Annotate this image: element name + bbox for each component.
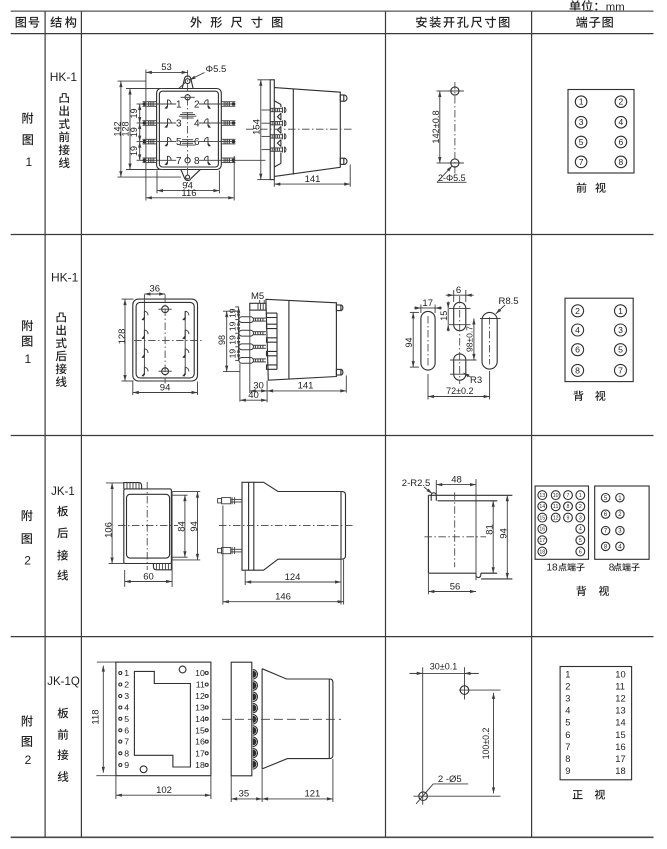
- svg-text:1: 1: [565, 670, 570, 680]
- svg-text:12: 12: [195, 691, 205, 701]
- svg-text:2: 2: [124, 680, 129, 690]
- svg-text:8: 8: [567, 504, 570, 510]
- svg-text:30±0.1: 30±0.1: [430, 662, 457, 672]
- svg-text:56: 56: [450, 581, 461, 592]
- svg-text:7: 7: [567, 493, 570, 499]
- svg-text:HK-1: HK-1: [50, 70, 78, 84]
- svg-text:118: 118: [91, 709, 102, 724]
- svg-text:13: 13: [615, 706, 625, 716]
- svg-text:18: 18: [195, 760, 205, 770]
- svg-text:53: 53: [161, 62, 172, 73]
- svg-text:154: 154: [252, 119, 263, 135]
- svg-text:4: 4: [618, 545, 622, 551]
- svg-text:3: 3: [176, 119, 182, 130]
- svg-text:2: 2: [565, 682, 570, 692]
- svg-text:2: 2: [24, 554, 31, 568]
- svg-text:7: 7: [124, 737, 129, 747]
- svg-text:3: 3: [618, 529, 622, 535]
- svg-text:6: 6: [575, 345, 580, 355]
- svg-text:94: 94: [189, 521, 200, 532]
- svg-text:94: 94: [160, 382, 171, 393]
- svg-text:2-Φ5.5: 2-Φ5.5: [438, 173, 466, 183]
- svg-text:11: 11: [615, 682, 625, 692]
- svg-text:1: 1: [618, 496, 622, 502]
- svg-text:2 -Ø5: 2 -Ø5: [438, 774, 462, 785]
- svg-text:2-R2.5: 2-R2.5: [402, 478, 431, 489]
- svg-text:19: 19: [228, 349, 238, 359]
- svg-text:1: 1: [618, 306, 623, 316]
- svg-text:19: 19: [129, 146, 139, 156]
- svg-text:4: 4: [575, 325, 580, 335]
- svg-text:19: 19: [129, 127, 139, 137]
- svg-text:1: 1: [26, 155, 33, 169]
- svg-text:15: 15: [615, 730, 625, 740]
- svg-text:146: 146: [275, 592, 291, 603]
- svg-text:40: 40: [248, 390, 259, 401]
- svg-text:3: 3: [579, 515, 582, 521]
- svg-text:7: 7: [176, 156, 182, 167]
- svg-text:R8.5: R8.5: [499, 296, 519, 307]
- svg-text:94: 94: [499, 528, 510, 539]
- svg-text:15: 15: [195, 725, 205, 735]
- svg-text:102: 102: [156, 785, 172, 796]
- svg-text:9: 9: [567, 515, 570, 521]
- svg-text:36: 36: [150, 284, 161, 295]
- svg-text:1: 1: [176, 100, 182, 111]
- svg-text:16: 16: [195, 737, 205, 747]
- svg-text:8: 8: [565, 754, 570, 764]
- svg-text:19: 19: [129, 108, 139, 118]
- svg-text:1: 1: [25, 352, 32, 366]
- svg-text:84: 84: [176, 521, 187, 532]
- svg-text:19: 19: [228, 308, 238, 318]
- svg-text:141: 141: [298, 381, 314, 392]
- svg-text:5: 5: [618, 345, 623, 355]
- svg-text:16: 16: [539, 527, 545, 533]
- svg-text:18: 18: [546, 563, 558, 574]
- svg-text:10: 10: [195, 668, 205, 678]
- svg-text:2: 2: [25, 753, 32, 767]
- svg-text:7: 7: [618, 365, 623, 375]
- svg-text:19: 19: [228, 335, 238, 345]
- svg-text:121: 121: [304, 789, 320, 800]
- svg-text:5: 5: [579, 137, 584, 147]
- svg-text:5: 5: [579, 538, 582, 544]
- svg-text:9: 9: [124, 760, 129, 770]
- svg-text:8: 8: [124, 748, 129, 758]
- svg-text:5: 5: [604, 496, 608, 502]
- svg-text:2: 2: [579, 504, 582, 510]
- svg-text:15: 15: [439, 311, 449, 321]
- svg-text:8: 8: [609, 563, 615, 574]
- svg-text:14: 14: [615, 718, 625, 728]
- svg-text:14: 14: [539, 504, 545, 510]
- svg-text:15: 15: [539, 515, 545, 521]
- svg-text:7: 7: [565, 742, 570, 752]
- svg-text:7: 7: [604, 529, 608, 535]
- svg-text:17: 17: [615, 754, 625, 764]
- svg-text:124: 124: [285, 572, 301, 583]
- svg-text:81: 81: [484, 524, 495, 535]
- svg-text:17: 17: [422, 298, 433, 309]
- svg-text:18: 18: [539, 549, 545, 555]
- svg-text:48: 48: [451, 475, 462, 486]
- svg-text:35: 35: [239, 789, 250, 800]
- svg-text:1: 1: [579, 97, 584, 107]
- svg-text:10: 10: [553, 493, 559, 499]
- svg-text:14: 14: [195, 714, 205, 724]
- svg-text:6: 6: [619, 137, 624, 147]
- svg-text:11: 11: [196, 680, 205, 690]
- svg-text:98±0.7: 98±0.7: [465, 326, 475, 352]
- svg-text:4: 4: [194, 119, 200, 130]
- svg-text:6: 6: [124, 725, 129, 735]
- svg-text:3: 3: [124, 691, 129, 701]
- svg-text:60: 60: [143, 571, 154, 582]
- svg-text:3: 3: [579, 117, 584, 127]
- svg-text:142±0.8: 142±0.8: [431, 110, 441, 143]
- svg-text:JK-1: JK-1: [51, 486, 75, 498]
- svg-text:6: 6: [565, 730, 570, 740]
- svg-text:6: 6: [194, 137, 200, 148]
- svg-text:6: 6: [604, 512, 608, 518]
- svg-text:8: 8: [194, 156, 200, 167]
- svg-text:12: 12: [553, 515, 559, 521]
- svg-text:9: 9: [565, 766, 570, 776]
- svg-text:2: 2: [619, 97, 624, 107]
- svg-text:6: 6: [579, 549, 582, 555]
- svg-text:116: 116: [181, 188, 196, 199]
- svg-text:8: 8: [604, 545, 608, 551]
- svg-text:13: 13: [539, 493, 545, 499]
- svg-text:141: 141: [305, 174, 321, 185]
- svg-text:10: 10: [615, 670, 625, 680]
- svg-text:18: 18: [615, 766, 625, 776]
- svg-text:4: 4: [565, 706, 570, 716]
- svg-text:JK-1Q: JK-1Q: [47, 676, 80, 688]
- svg-text:98: 98: [217, 335, 227, 345]
- svg-text:2: 2: [575, 306, 580, 316]
- svg-text:R3: R3: [470, 375, 482, 386]
- svg-text:HK-1: HK-1: [51, 270, 79, 284]
- svg-text:Φ5.5: Φ5.5: [206, 64, 227, 75]
- svg-text:3: 3: [618, 325, 623, 335]
- svg-text:7: 7: [579, 157, 584, 167]
- svg-text:72±0.2: 72±0.2: [446, 386, 473, 396]
- svg-text:5: 5: [176, 137, 182, 148]
- svg-text:1: 1: [579, 493, 582, 499]
- svg-text:100±0.2: 100±0.2: [481, 728, 491, 760]
- svg-text:19: 19: [228, 321, 238, 331]
- svg-text:4: 4: [124, 703, 129, 713]
- svg-text:8: 8: [619, 157, 624, 167]
- svg-text:12: 12: [615, 694, 625, 704]
- svg-text:17: 17: [195, 748, 205, 758]
- svg-text:2: 2: [618, 512, 622, 518]
- svg-text:5: 5: [565, 718, 570, 728]
- svg-text:94: 94: [404, 337, 414, 347]
- svg-text:106: 106: [103, 522, 114, 538]
- svg-text:13: 13: [195, 703, 205, 713]
- svg-text:8: 8: [575, 365, 580, 375]
- svg-text:128: 128: [117, 329, 128, 345]
- svg-text:2: 2: [194, 100, 200, 111]
- svg-text:17: 17: [539, 538, 545, 544]
- svg-text:6: 6: [456, 285, 461, 296]
- svg-text:11: 11: [553, 504, 558, 510]
- svg-text:4: 4: [619, 117, 624, 127]
- svg-text:1: 1: [124, 668, 129, 678]
- svg-text:16: 16: [615, 742, 625, 752]
- svg-text:M5: M5: [251, 291, 264, 302]
- svg-text:4: 4: [579, 527, 582, 533]
- svg-text:3: 3: [565, 694, 570, 704]
- svg-text:5: 5: [124, 714, 129, 724]
